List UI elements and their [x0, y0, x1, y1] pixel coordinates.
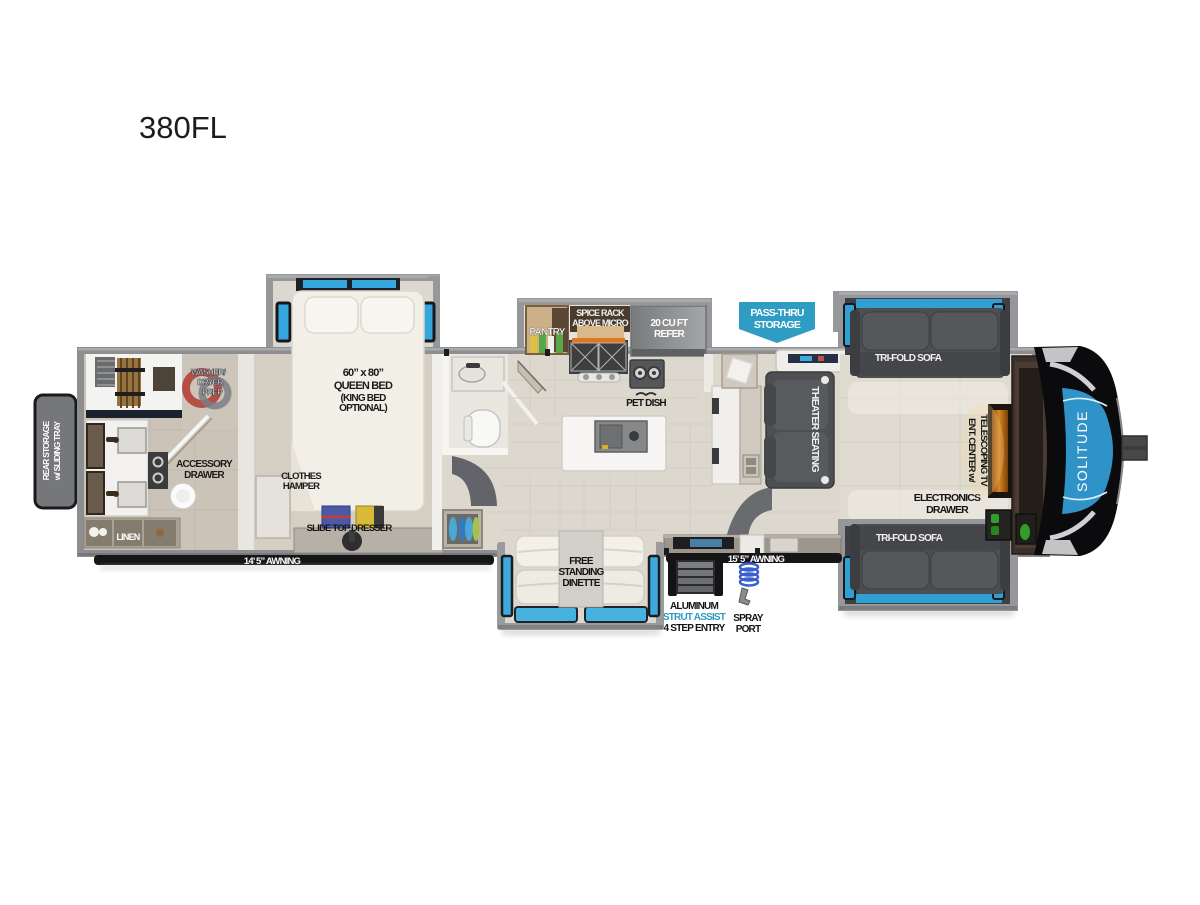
svg-text:DRAWER: DRAWER — [184, 470, 225, 481]
svg-text:w/ SLIDING TRAY: w/ SLIDING TRAY — [52, 421, 62, 482]
svg-text:WASHER/: WASHER/ — [191, 367, 227, 377]
svg-text:PREP: PREP — [202, 387, 223, 397]
svg-text:ALUMINUM: ALUMINUM — [670, 601, 719, 612]
svg-text:QUEEN BED: QUEEN BED — [334, 380, 393, 392]
svg-text:REFER: REFER — [654, 329, 685, 340]
svg-text:OPTIONAL): OPTIONAL) — [339, 403, 387, 414]
svg-text:TRI-FOLD SOFA: TRI-FOLD SOFA — [875, 353, 942, 364]
svg-text:PORT: PORT — [736, 624, 761, 635]
svg-text:380FL: 380FL — [139, 110, 227, 145]
svg-text:PET DISH: PET DISH — [626, 398, 666, 409]
svg-text:4 STEP ENTRY: 4 STEP ENTRY — [664, 623, 726, 634]
svg-text:TELESCOPING TV: TELESCOPING TV — [978, 414, 989, 487]
svg-text:ABOVE MICRO: ABOVE MICRO — [572, 318, 629, 328]
svg-text:DRYER: DRYER — [197, 377, 223, 387]
svg-text:ENT. CENTER w/: ENT. CENTER w/ — [966, 418, 977, 483]
svg-text:HAMPER: HAMPER — [283, 481, 320, 492]
svg-text:THEATER SEATING: THEATER SEATING — [809, 386, 821, 472]
svg-text:DINETTE: DINETTE — [562, 578, 600, 589]
svg-text:PASS-THRU: PASS-THRU — [750, 307, 803, 319]
svg-text:SLIDE TOP DRESSER: SLIDE TOP DRESSER — [307, 523, 393, 534]
svg-text:LINEN: LINEN — [116, 532, 139, 542]
svg-text:ACCESSORY: ACCESSORY — [176, 459, 233, 470]
svg-text:TRI-FOLD SOFA: TRI-FOLD SOFA — [876, 533, 943, 544]
svg-text:SOLITUDE: SOLITUDE — [1074, 410, 1090, 492]
svg-text:STRUT ASSIST: STRUT ASSIST — [663, 612, 726, 623]
svg-text:STORAGE: STORAGE — [754, 319, 801, 331]
svg-text:STANDING: STANDING — [558, 567, 604, 578]
svg-text:REAR STORAGE: REAR STORAGE — [41, 421, 51, 481]
svg-text:PANTRY: PANTRY — [529, 327, 565, 338]
svg-text:15’ 5” AWNING: 15’ 5” AWNING — [728, 554, 785, 565]
svg-text:ELECTRONICS: ELECTRONICS — [914, 492, 981, 504]
svg-text:20 CU FT: 20 CU FT — [651, 318, 689, 329]
svg-text:DRAWER: DRAWER — [926, 504, 969, 516]
svg-text:SPRAY: SPRAY — [733, 613, 764, 624]
svg-text:FREE: FREE — [569, 556, 594, 567]
svg-text:60” x 80”: 60” x 80” — [343, 367, 384, 379]
svg-text:SPICE RACK: SPICE RACK — [576, 308, 625, 318]
